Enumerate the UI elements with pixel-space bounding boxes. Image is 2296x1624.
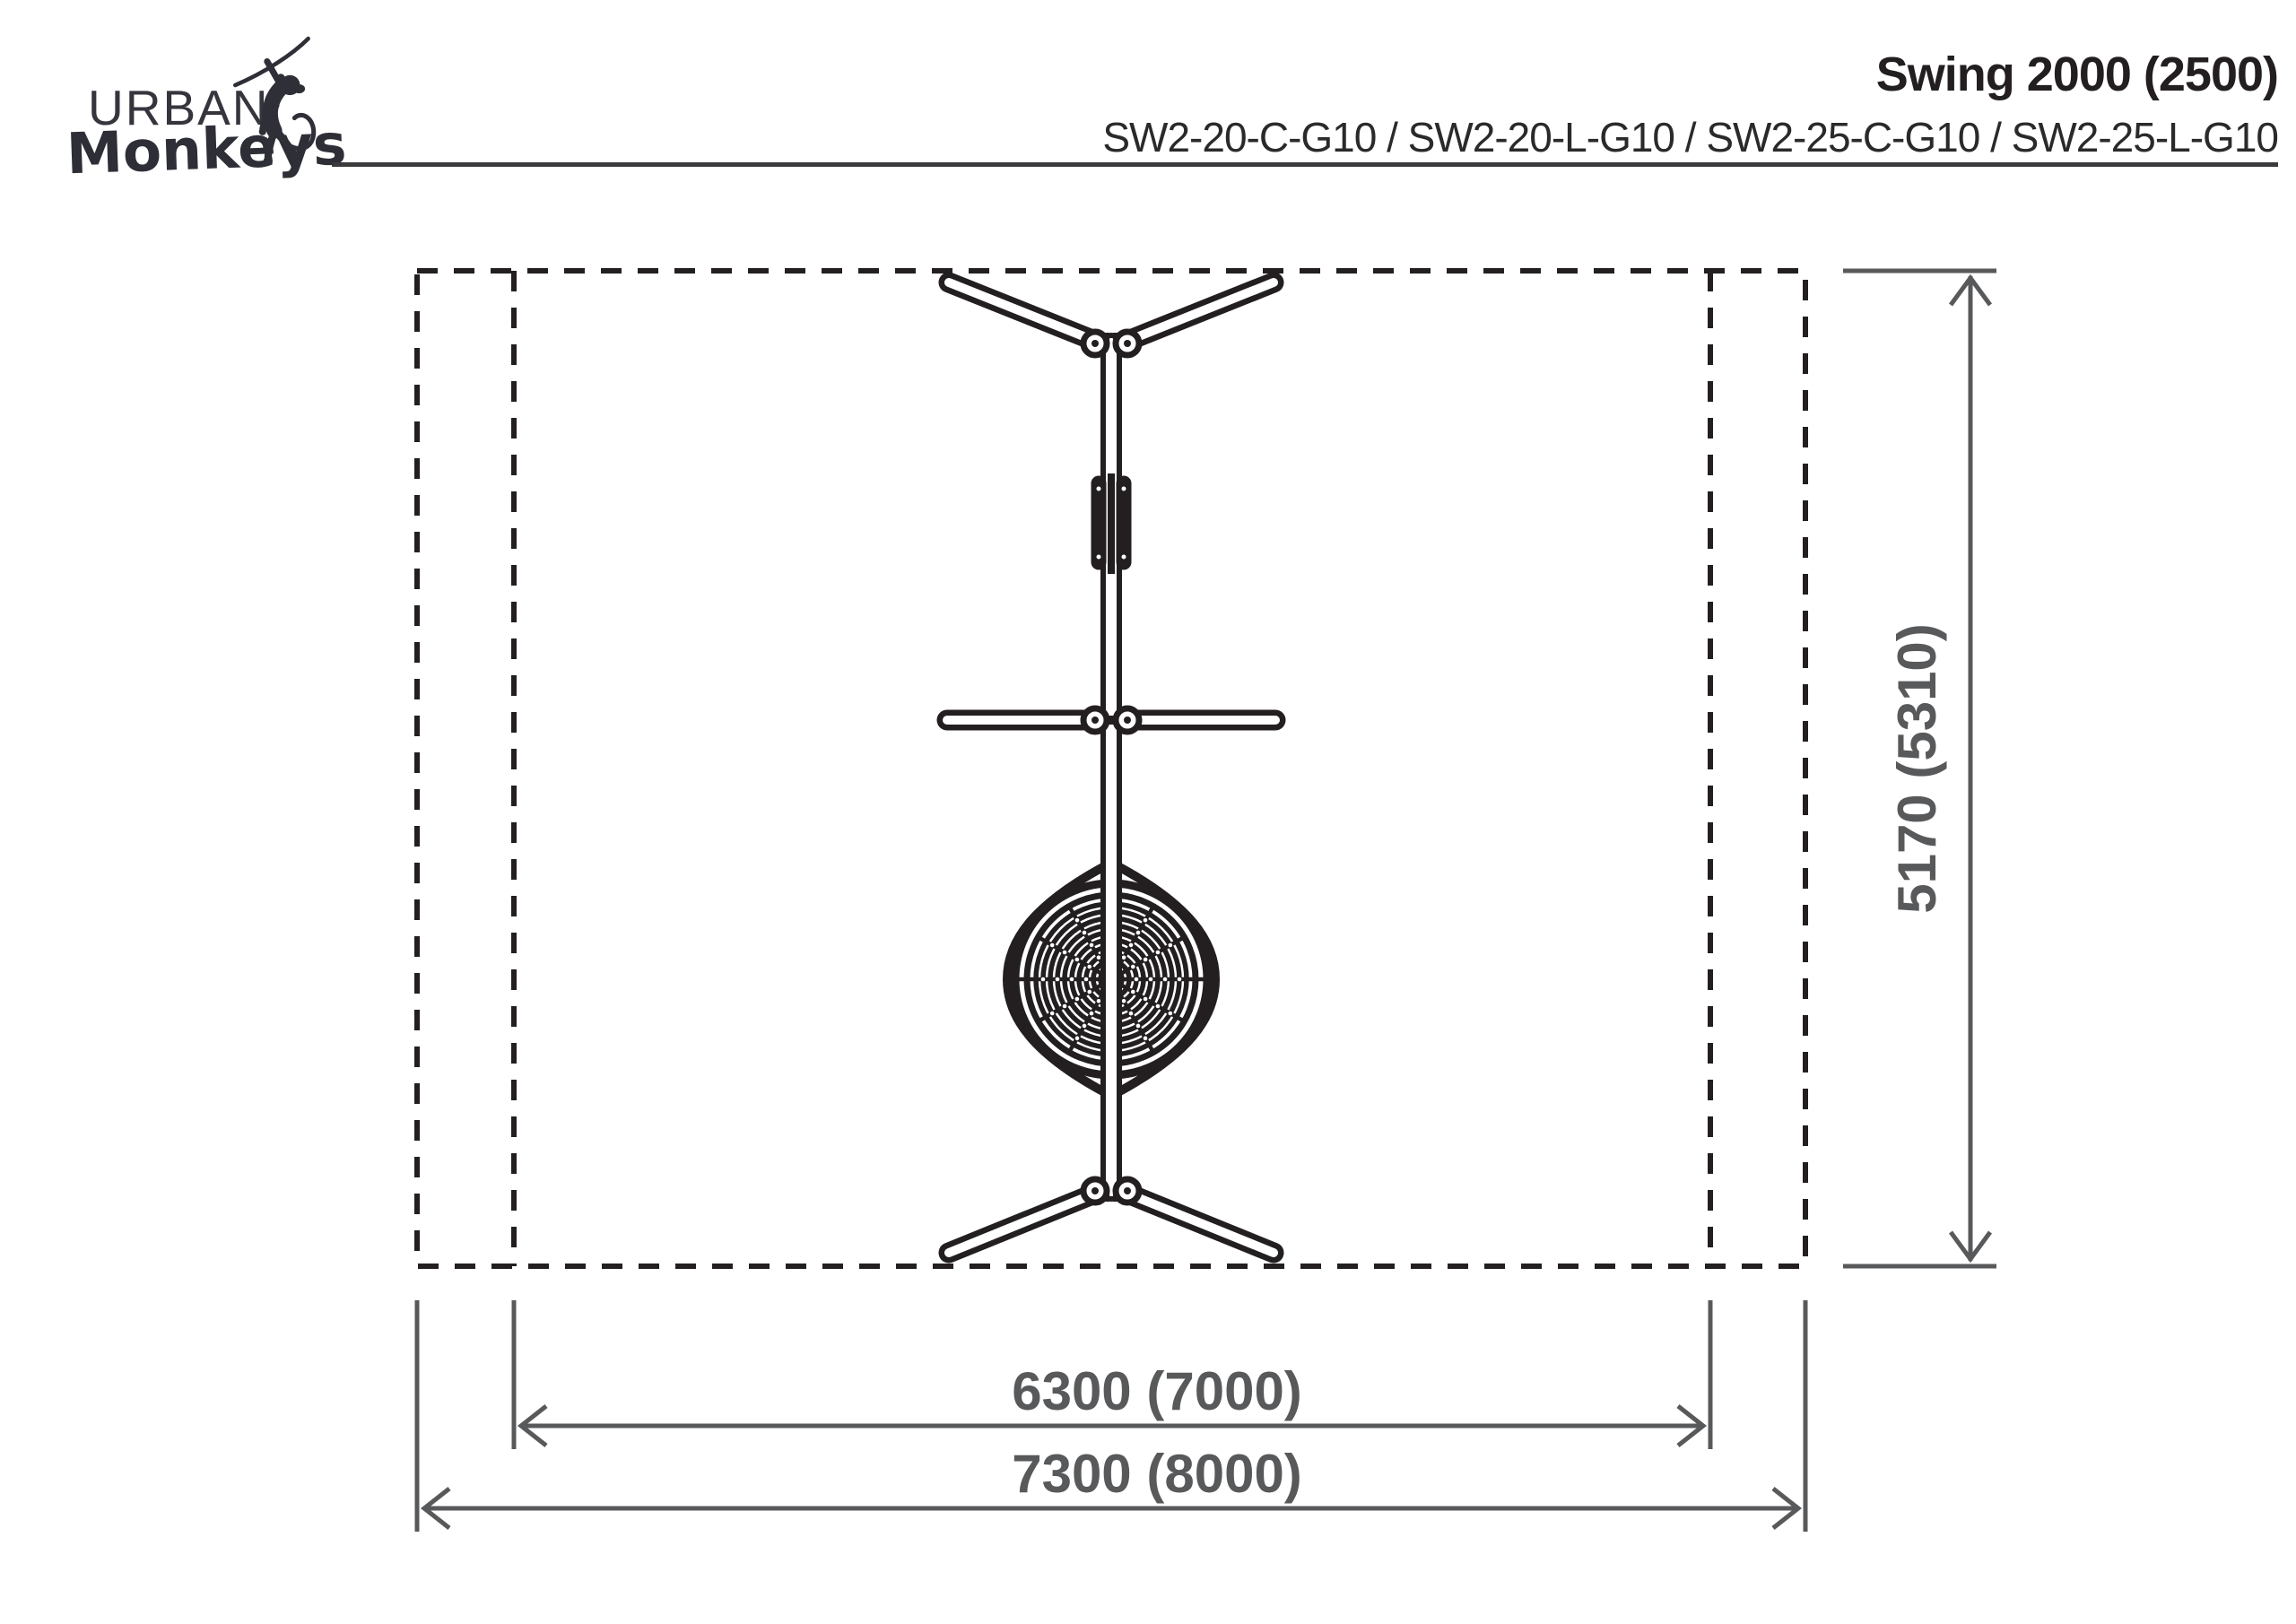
nest-web-knot [1087, 990, 1091, 994]
nest-web-knot [1050, 1012, 1055, 1016]
nest-web-knot [1136, 931, 1141, 935]
nest-web-knot [1087, 965, 1091, 969]
nest-web-knot [1075, 997, 1080, 1002]
nest-web-knot [1075, 1037, 1080, 1041]
nest-web-knot [1169, 1012, 1173, 1016]
nest-web-knot [1097, 955, 1101, 960]
nest-web-knot [1041, 977, 1046, 982]
drawing-sheet: URBAN Monkeys Swing 2000 (2500) SW2-20-C… [0, 0, 2296, 1624]
top-hinge-right-pin [1124, 340, 1131, 347]
nest-web-knot [1135, 977, 1139, 982]
dim-depth-label: 5170 (5310) [1887, 623, 1947, 914]
nest-web-knot [1131, 990, 1135, 994]
nest-web-knot [1122, 999, 1126, 1003]
dim-outer-width-label: 7300 (8000) [1012, 1444, 1302, 1504]
nest-web-knot [1083, 1024, 1087, 1029]
nest-web-knot [1144, 997, 1148, 1002]
bottom-hinge-left-pin [1091, 1187, 1099, 1194]
hanger-pin [1122, 555, 1126, 560]
nest-web-knot [1156, 951, 1161, 955]
top-right-leg-fill [1126, 282, 1274, 342]
nest-web-knot [1129, 943, 1134, 948]
crossbar-hinge-left-pin [1091, 716, 1099, 724]
dimension-annotations: 5170 (5310) 6300 (7000) 7300 (8000) [417, 271, 1996, 1532]
top-left-leg-fill [949, 282, 1097, 342]
rope-hanger [1097, 473, 1126, 574]
nest-web-knot [1149, 977, 1153, 982]
nest-web-knot [1056, 977, 1060, 982]
nest-web-knot [1163, 977, 1168, 982]
nest-web-knot [1156, 1004, 1161, 1009]
bottom-hinge-right-pin [1124, 1187, 1131, 1194]
nest-web-knot [1144, 918, 1148, 923]
nest-web-knot [1050, 943, 1055, 948]
nest-web-knot [1144, 958, 1148, 962]
nest-web-knot [1169, 943, 1173, 948]
nest-web-knot [1097, 999, 1101, 1003]
nest-web-knot [1070, 977, 1074, 982]
nest-web-knot [1178, 977, 1182, 982]
nest-web-knot [1063, 951, 1067, 955]
top-hinge-left-pin [1091, 340, 1099, 347]
nest-web-knot [1122, 955, 1126, 960]
dim-inner-width-label: 6300 (7000) [1012, 1361, 1302, 1421]
nest-web-knot [1075, 958, 1080, 962]
nest-web-knot [1136, 1024, 1141, 1029]
hanger-pin [1122, 487, 1126, 491]
nest-web-knot [1129, 1012, 1134, 1016]
nest-web-knot [1084, 977, 1089, 982]
hanger-pin [1097, 555, 1101, 560]
technical-drawing-canvas: 5170 (5310) 6300 (7000) 7300 (8000) [0, 0, 2296, 1624]
crossbar-hinge-right-pin [1124, 716, 1131, 724]
bottom-right-leg-fill [1126, 1193, 1274, 1253]
nest-web-knot [1083, 931, 1087, 935]
nest-web-knot [1075, 918, 1080, 923]
hanger-pin [1097, 487, 1101, 491]
bottom-left-leg-fill [949, 1193, 1097, 1253]
nest-web-knot [1144, 1037, 1148, 1041]
nest-web-knot [1063, 1004, 1067, 1009]
nest-web-knot [1090, 943, 1094, 948]
nest-web-knot [1090, 1012, 1094, 1016]
nest-web-knot [1131, 965, 1135, 969]
